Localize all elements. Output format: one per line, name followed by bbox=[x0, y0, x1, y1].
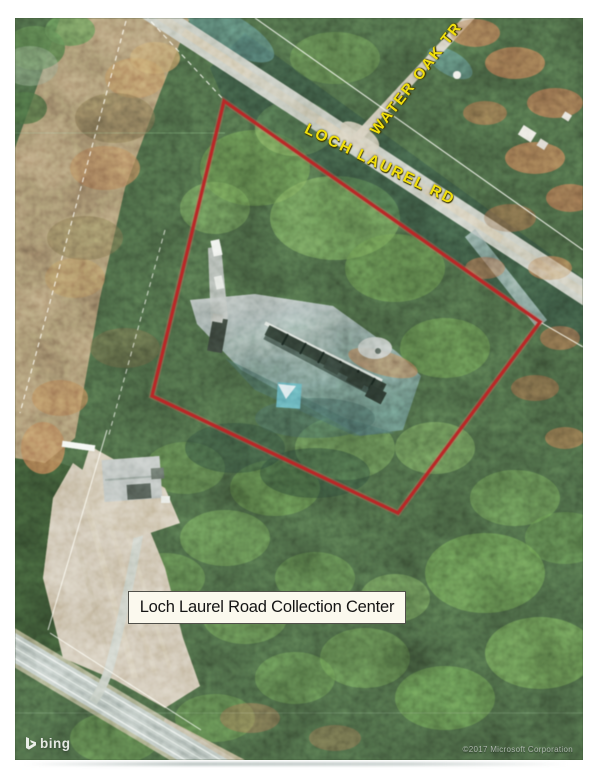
aerial-photo: WATER OAK TR LOCH LAUREL RD Loch Laurel … bbox=[15, 18, 583, 760]
scanned-map-page: WATER OAK TR LOCH LAUREL RD Loch Laurel … bbox=[0, 0, 600, 777]
aerial-imagery bbox=[15, 18, 583, 760]
scan-smudge bbox=[24, 762, 569, 766]
